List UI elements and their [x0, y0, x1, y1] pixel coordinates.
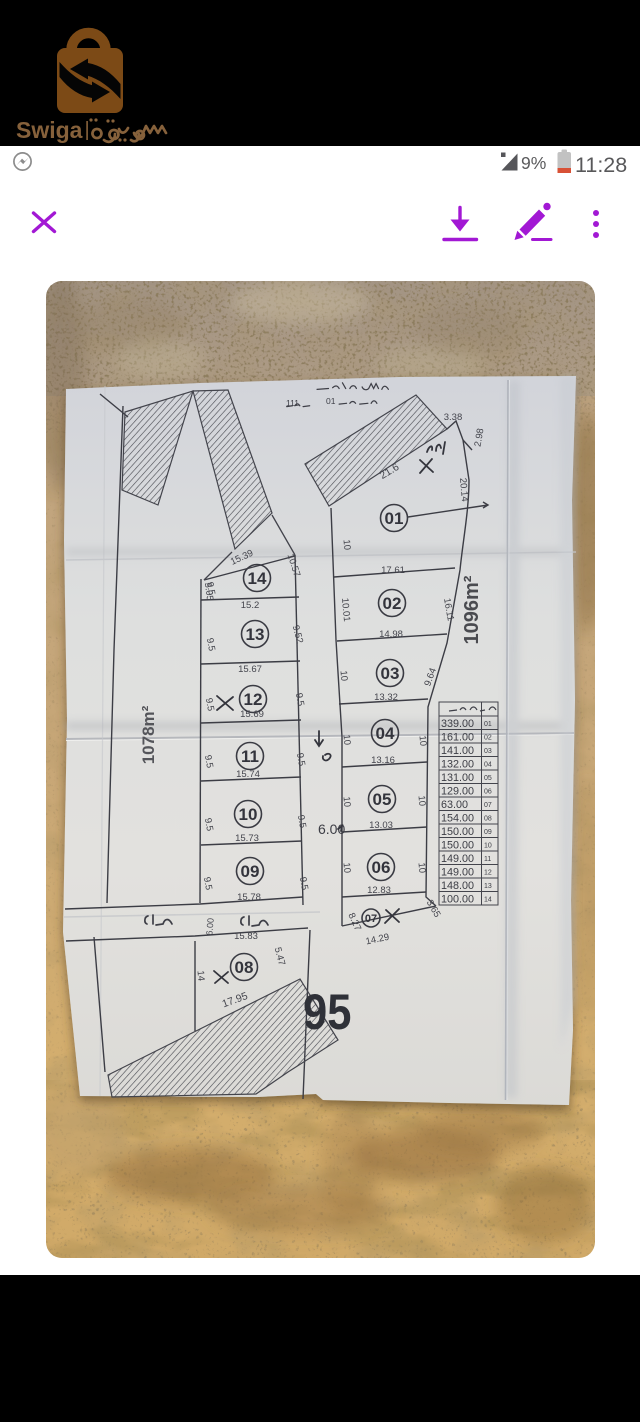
svg-text:1078m²: 1078m² — [139, 705, 158, 764]
svg-text:05: 05 — [484, 775, 492, 782]
svg-text:9.5: 9.5 — [293, 692, 306, 707]
svg-text:10.01: 10.01 — [339, 597, 352, 622]
svg-text:13.32: 13.32 — [374, 692, 398, 703]
svg-text:12: 12 — [484, 870, 492, 877]
svg-text:100.00: 100.00 — [441, 893, 474, 905]
svg-text:12.83: 12.83 — [367, 885, 391, 896]
svg-text:111: 111 — [286, 398, 299, 408]
svg-text:17.61: 17.61 — [381, 565, 405, 576]
svg-text:05: 05 — [373, 790, 392, 809]
svg-text:01: 01 — [484, 721, 492, 728]
svg-text:15.69: 15.69 — [240, 709, 264, 720]
svg-text:13: 13 — [246, 625, 265, 644]
svg-text:01: 01 — [326, 396, 336, 406]
svg-text:14.98: 14.98 — [379, 629, 403, 640]
svg-text:Swiga: Swiga — [16, 117, 83, 143]
svg-text:08: 08 — [484, 816, 492, 823]
svg-text:148.00: 148.00 — [441, 880, 474, 892]
svg-text:6.00: 6.00 — [204, 918, 215, 936]
svg-text:06: 06 — [372, 858, 391, 877]
svg-text:9.5: 9.5 — [204, 637, 217, 652]
svg-text:14: 14 — [484, 897, 492, 904]
svg-text:|: | — [85, 119, 90, 141]
svg-text:15.67: 15.67 — [238, 664, 262, 675]
svg-text:10: 10 — [338, 670, 350, 681]
svg-text:10: 10 — [341, 539, 353, 550]
svg-text:9.5: 9.5 — [203, 697, 216, 712]
svg-text:10: 10 — [416, 795, 428, 806]
svg-text:10: 10 — [239, 805, 258, 824]
svg-text:04: 04 — [376, 724, 395, 743]
svg-text:141.00: 141.00 — [441, 745, 474, 757]
svg-text:10: 10 — [341, 796, 353, 807]
svg-text:11:28: 11:28 — [575, 153, 627, 177]
svg-text:9.5: 9.5 — [201, 876, 214, 891]
svg-text:13.03: 13.03 — [369, 820, 393, 831]
svg-text:06: 06 — [484, 789, 492, 796]
svg-text:04: 04 — [484, 762, 492, 769]
svg-text:150.00: 150.00 — [441, 839, 474, 851]
svg-text:9.5: 9.5 — [297, 876, 310, 891]
svg-text:03: 03 — [381, 664, 400, 683]
svg-text:13.16: 13.16 — [371, 755, 395, 766]
svg-text:1096m²: 1096m² — [461, 575, 483, 644]
svg-text:12: 12 — [244, 690, 263, 709]
svg-text:20.14: 20.14 — [457, 477, 470, 502]
svg-text:161.00: 161.00 — [441, 731, 474, 743]
svg-text:07: 07 — [484, 802, 492, 809]
svg-text:63.00: 63.00 — [441, 799, 468, 811]
svg-text:14: 14 — [195, 970, 207, 981]
svg-text:3.38: 3.38 — [444, 412, 463, 423]
svg-text:15.83: 15.83 — [234, 931, 258, 942]
svg-text:15.74: 15.74 — [236, 769, 260, 780]
svg-text:149.00: 149.00 — [441, 853, 474, 865]
svg-text:11: 11 — [241, 747, 259, 766]
svg-text:15.73: 15.73 — [235, 833, 259, 844]
svg-text:10: 10 — [416, 862, 428, 873]
svg-text:13: 13 — [484, 883, 492, 890]
svg-text:9%: 9% — [521, 153, 546, 173]
svg-text:10: 10 — [341, 734, 353, 745]
svg-text:02: 02 — [484, 735, 492, 742]
svg-text:150.00: 150.00 — [441, 826, 474, 838]
svg-text:07: 07 — [365, 913, 377, 925]
svg-text:339.00: 339.00 — [441, 718, 474, 730]
svg-text:10: 10 — [417, 735, 429, 746]
svg-text:129.00: 129.00 — [441, 785, 474, 797]
svg-text:15.78: 15.78 — [237, 892, 261, 903]
svg-text:10: 10 — [341, 862, 353, 873]
svg-text:9.5: 9.5 — [202, 817, 215, 832]
svg-text:9.5: 9.5 — [295, 814, 308, 829]
svg-text:132.00: 132.00 — [441, 758, 474, 770]
svg-text:14: 14 — [248, 569, 267, 588]
svg-text:15.2: 15.2 — [241, 600, 260, 611]
svg-text:131.00: 131.00 — [441, 772, 474, 784]
svg-text:09: 09 — [484, 829, 492, 836]
svg-text:11: 11 — [484, 856, 491, 863]
svg-text:09: 09 — [241, 862, 260, 881]
svg-text:10: 10 — [484, 843, 492, 850]
svg-text:02: 02 — [383, 594, 402, 613]
svg-text:08: 08 — [235, 958, 254, 977]
svg-text:01: 01 — [385, 509, 404, 528]
svg-text:154.00: 154.00 — [441, 812, 474, 824]
svg-text:9.5: 9.5 — [202, 754, 215, 769]
svg-text:95: 95 — [303, 984, 351, 1039]
svg-text:03: 03 — [484, 748, 492, 755]
svg-text:149.00: 149.00 — [441, 866, 474, 878]
svg-text:9.5: 9.5 — [294, 752, 307, 767]
